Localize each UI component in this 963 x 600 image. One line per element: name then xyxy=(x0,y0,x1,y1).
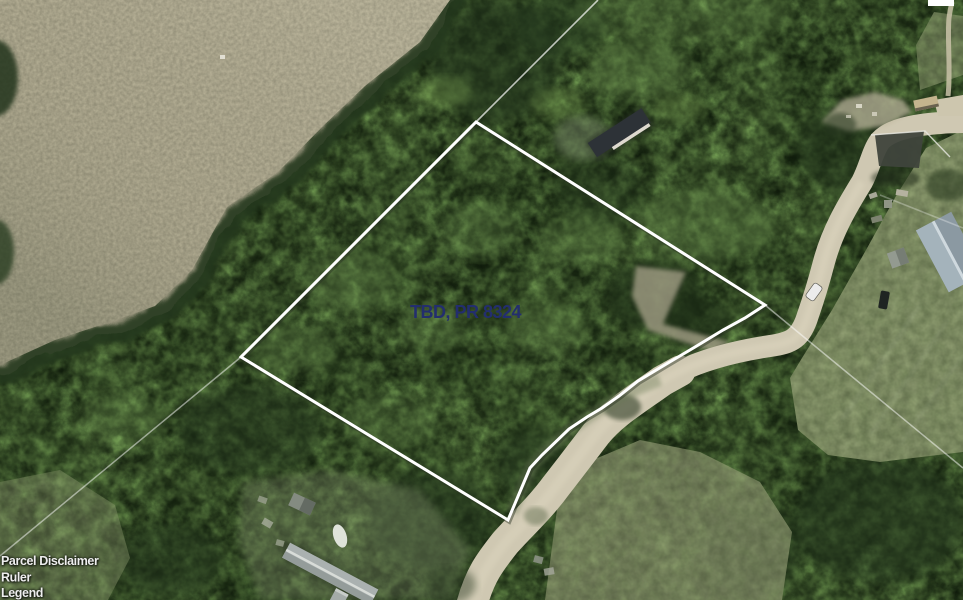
svg-text:Ruler: Ruler xyxy=(1,571,31,585)
svg-text:Legend: Legend xyxy=(1,586,43,600)
svg-text:TBD, PR 8324: TBD, PR 8324 xyxy=(410,302,522,322)
svg-text:Parcel Disclaimer: Parcel Disclaimer xyxy=(1,554,99,568)
